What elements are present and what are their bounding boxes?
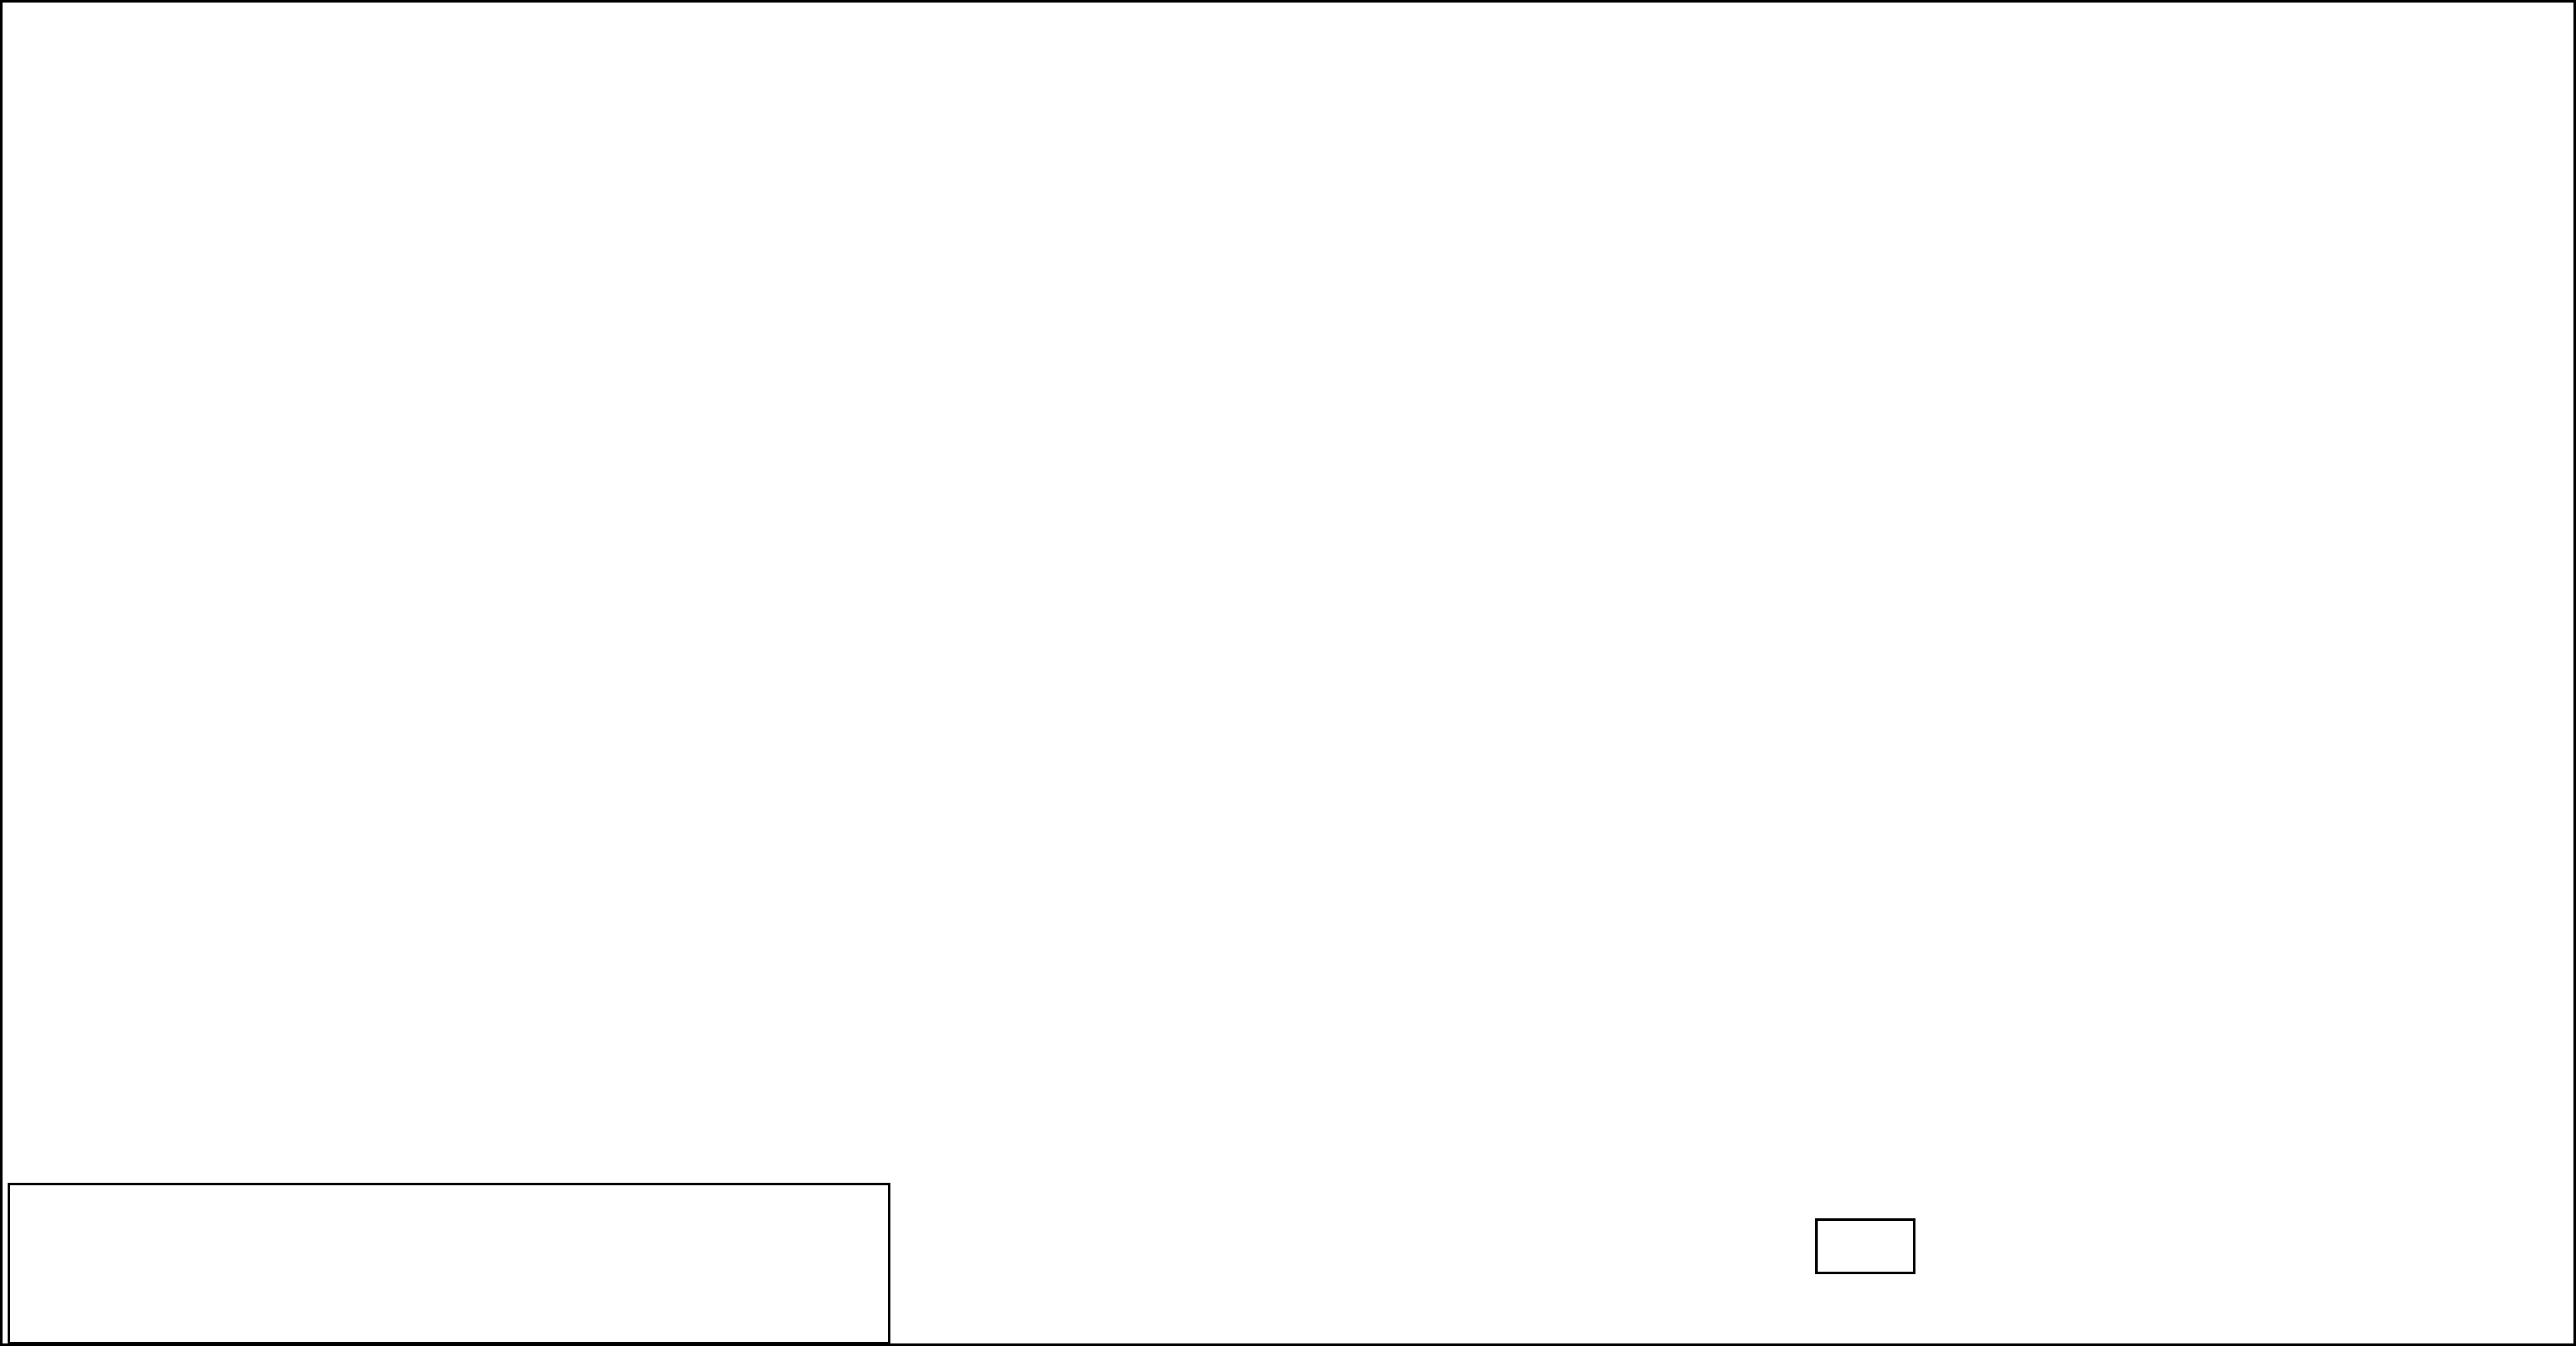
panel-b-label [1815,1218,1915,1274]
figure-root [0,0,2576,1346]
well-log-chart [0,0,2576,1346]
